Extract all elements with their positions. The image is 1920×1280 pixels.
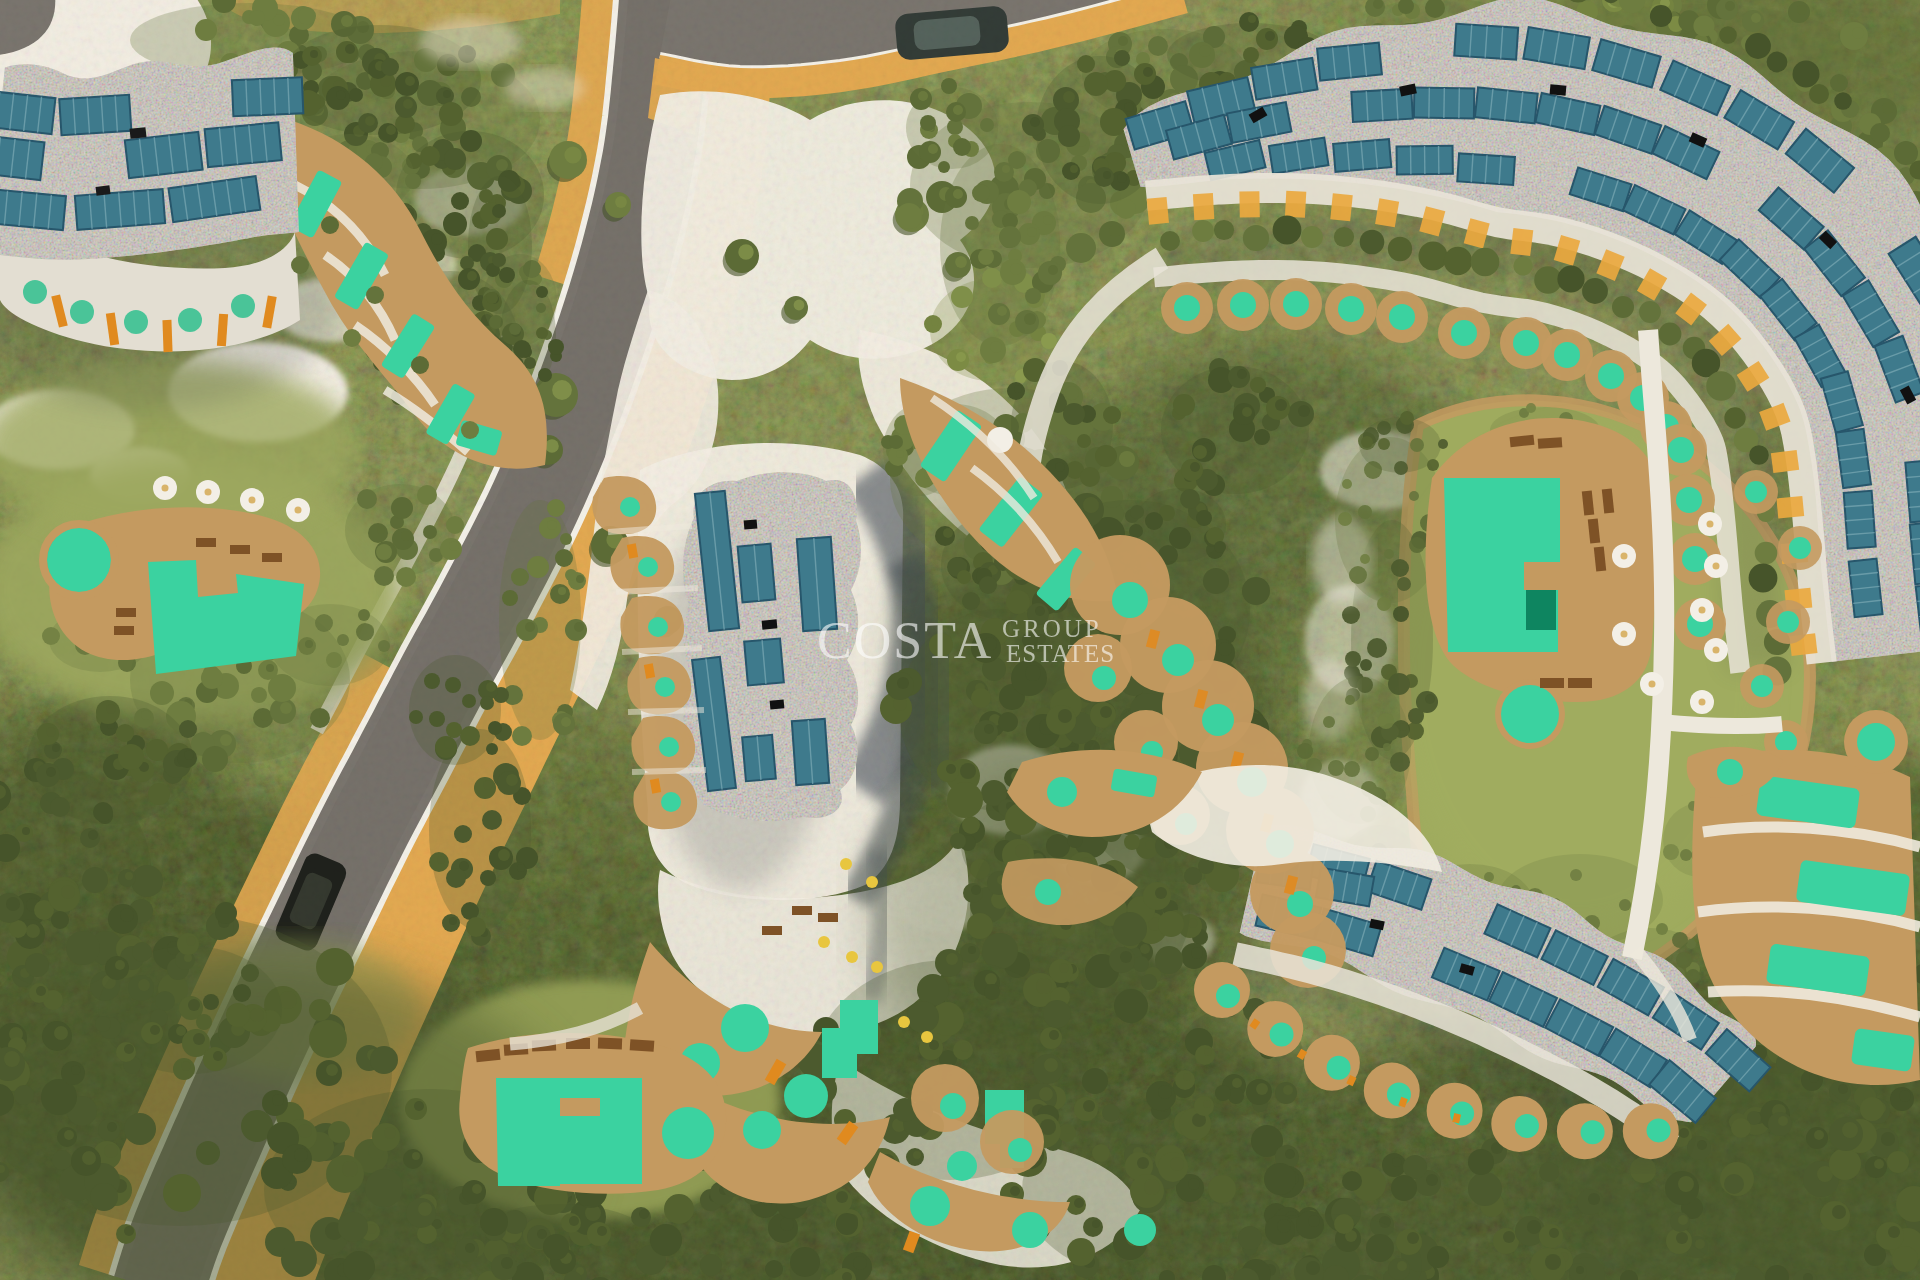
svg-text:ESTATES: ESTATES	[1006, 640, 1115, 667]
svg-text:GROUP: GROUP	[1002, 615, 1102, 642]
svg-text:COSTA: COSTA	[817, 612, 993, 669]
